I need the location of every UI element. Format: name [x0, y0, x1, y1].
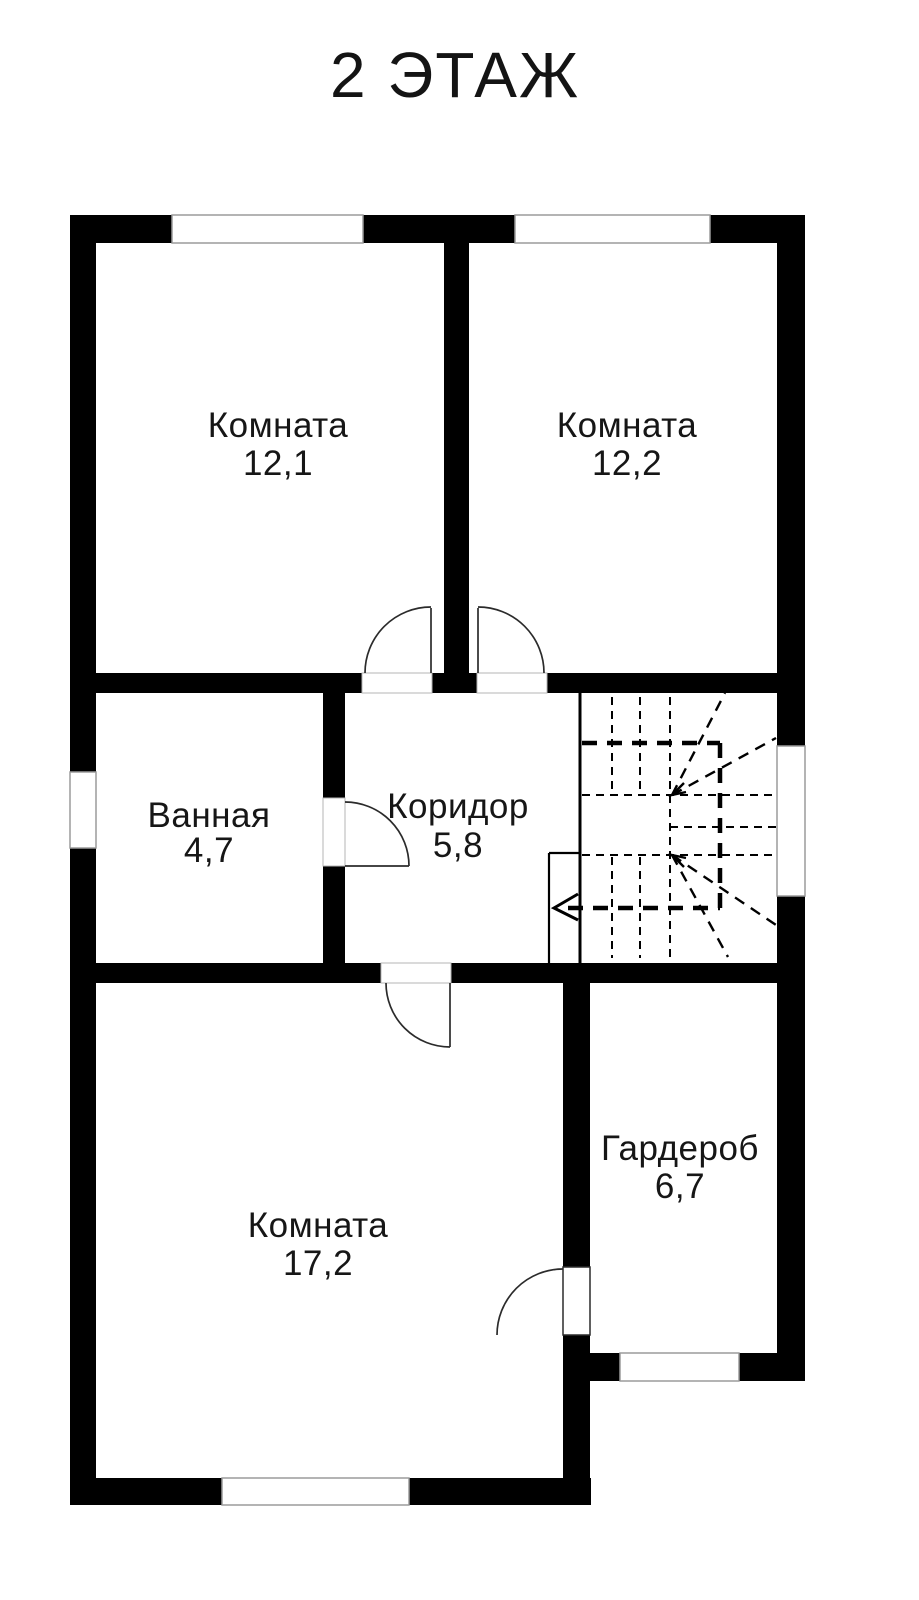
floor-plan-drawing: 2 ЭТАЖ — [0, 0, 919, 1600]
room-label-wardrobe: Гардероб — [601, 1129, 759, 1168]
window-wardrobe — [620, 1353, 739, 1381]
room-label-corridor: Коридор — [387, 787, 529, 826]
door-opening-room-12-1 — [362, 673, 432, 693]
door-opening-bathroom — [323, 798, 345, 866]
staircase — [549, 693, 776, 963]
wall-wardrobe-left — [563, 983, 590, 1505]
floor-plan-page: 2 ЭТАЖ — [0, 0, 919, 1600]
room-area-wardrobe: 6,7 — [655, 1167, 705, 1206]
room-area-12-2: 12,2 — [592, 444, 662, 483]
door-swing-room-12-1 — [365, 607, 431, 673]
window-room-12-2 — [515, 215, 710, 243]
door-opening-room-17-2 — [381, 963, 451, 983]
door-swing-wardrobe — [497, 1269, 563, 1335]
room-label-17-2: Комната — [248, 1206, 389, 1245]
room-area-17-2: 17,2 — [283, 1244, 353, 1283]
door-swing-room-12-2 — [478, 607, 544, 673]
stair-winder-line — [672, 855, 776, 925]
room-area-bathroom: 4,7 — [184, 831, 234, 870]
room-label-bathroom: Ванная — [148, 796, 271, 835]
door-swing-room-17-2 — [386, 983, 450, 1047]
wall-mid-upper — [96, 673, 777, 693]
room-area-corridor: 5,8 — [433, 826, 483, 865]
door-opening-wardrobe — [563, 1267, 590, 1335]
wall-divider-bedrooms — [444, 243, 469, 673]
window-room-12-1 — [172, 215, 363, 243]
room-area-12-1: 12,1 — [243, 444, 313, 483]
door-opening-room-12-2 — [477, 673, 547, 693]
room-label-12-1: Комната — [208, 406, 349, 445]
window-staircase — [777, 746, 805, 896]
stair-winder-line — [672, 738, 776, 795]
window-bathroom — [70, 772, 96, 848]
room-label-12-2: Комната — [557, 406, 698, 445]
floor-title: 2 ЭТАЖ — [330, 39, 580, 111]
window-room-17-2 — [222, 1478, 409, 1505]
wall-outer-left — [70, 215, 96, 1505]
